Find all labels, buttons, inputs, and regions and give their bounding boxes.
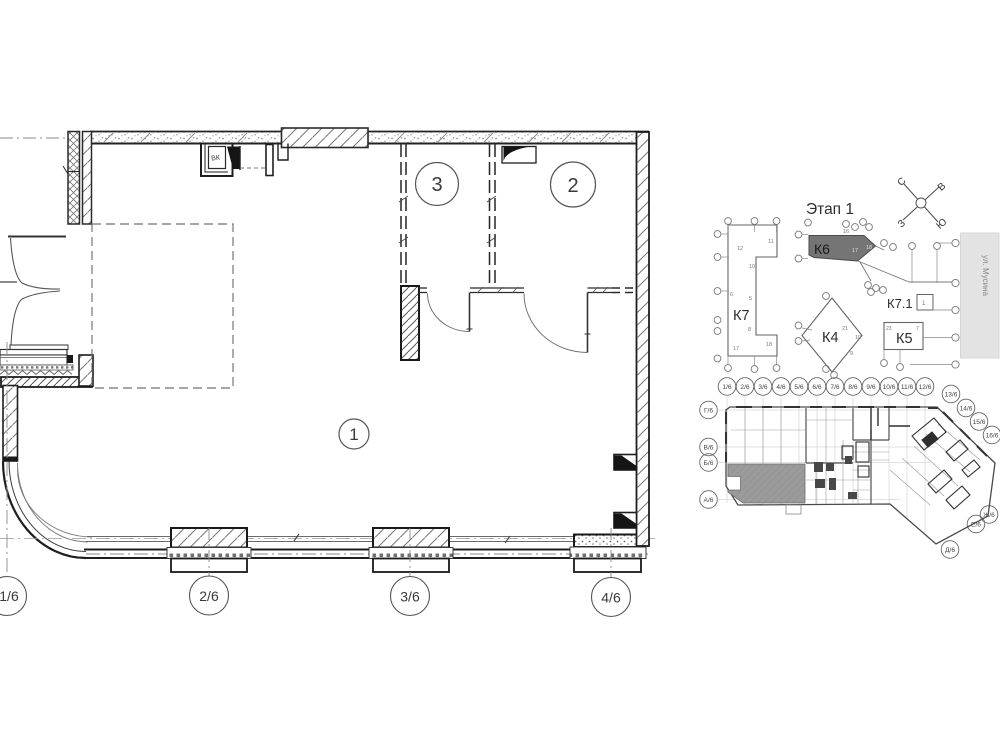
svg-text:1/6: 1/6 <box>722 384 731 391</box>
svg-text:14/6: 14/6 <box>960 406 973 413</box>
svg-text:21: 21 <box>842 326 848 332</box>
svg-text:2: 2 <box>567 175 578 197</box>
svg-text:3/6: 3/6 <box>758 384 767 391</box>
svg-text:ул. Мусина: ул. Мусина <box>981 255 990 296</box>
svg-text:10: 10 <box>749 264 755 270</box>
svg-text:3: 3 <box>431 174 442 196</box>
svg-text:15/6: 15/6 <box>973 419 986 426</box>
svg-text:8: 8 <box>748 327 751 333</box>
svg-text:3/6: 3/6 <box>400 589 420 605</box>
svg-text:В/6: В/6 <box>704 445 714 452</box>
svg-text:17: 17 <box>733 346 739 352</box>
svg-text:10: 10 <box>855 335 861 341</box>
svg-text:4/6: 4/6 <box>776 384 785 391</box>
svg-text:7/6: 7/6 <box>830 384 839 391</box>
svg-text:К5: К5 <box>896 331 913 347</box>
svg-text:6: 6 <box>730 292 733 298</box>
svg-text:18: 18 <box>766 342 772 348</box>
svg-text:Г/6: Г/6 <box>704 408 713 415</box>
svg-text:4/6: 4/6 <box>601 590 621 606</box>
svg-text:12/6: 12/6 <box>919 384 932 391</box>
svg-text:Д/6: Д/6 <box>945 547 955 554</box>
svg-text:5: 5 <box>749 296 752 302</box>
svg-text:17: 17 <box>852 248 858 254</box>
svg-text:11: 11 <box>768 239 774 245</box>
svg-text:К6: К6 <box>814 241 830 257</box>
svg-text:13/6: 13/6 <box>945 392 958 399</box>
svg-text:9: 9 <box>850 351 853 357</box>
svg-text:6/6: 6/6 <box>812 384 821 391</box>
svg-text:5/6: 5/6 <box>794 384 803 391</box>
svg-text:1: 1 <box>349 425 358 444</box>
svg-text:Б/6: Б/6 <box>704 460 714 467</box>
svg-text:8/6: 8/6 <box>848 384 857 391</box>
svg-text:1/6: 1/6 <box>0 588 19 604</box>
svg-text:16: 16 <box>843 229 849 235</box>
svg-text:10/6: 10/6 <box>883 384 896 391</box>
svg-text:К7.1: К7.1 <box>887 296 913 311</box>
svg-text:18: 18 <box>866 245 872 251</box>
svg-text:К7: К7 <box>733 308 750 324</box>
svg-text:К4: К4 <box>822 330 839 346</box>
svg-text:2/6: 2/6 <box>740 384 749 391</box>
svg-text:9/6: 9/6 <box>866 384 875 391</box>
svg-text:Этап 1: Этап 1 <box>806 201 854 218</box>
svg-text:23: 23 <box>886 326 892 332</box>
svg-text:11/6: 11/6 <box>901 384 914 391</box>
svg-text:7: 7 <box>916 326 919 332</box>
svg-text:16/6: 16/6 <box>986 433 999 440</box>
svg-text:12: 12 <box>737 246 743 252</box>
svg-text:А/6: А/6 <box>704 497 714 504</box>
svg-text:2/6: 2/6 <box>199 588 219 604</box>
